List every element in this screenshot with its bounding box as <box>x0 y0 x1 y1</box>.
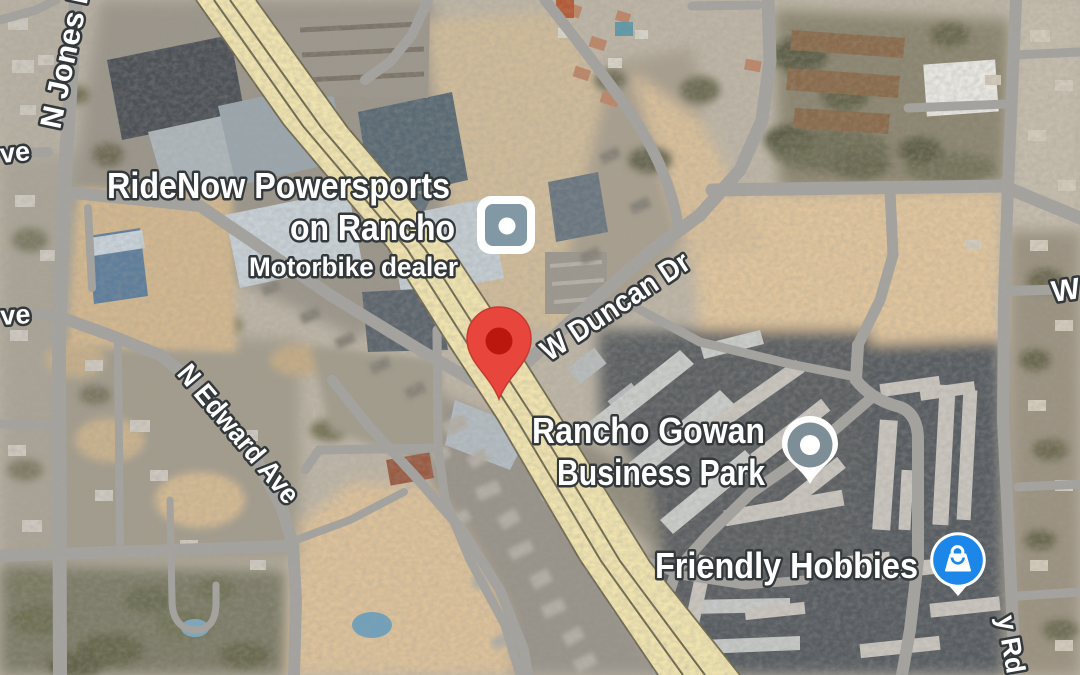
svg-text:Friendly Hobbies: Friendly Hobbies <box>655 545 918 586</box>
svg-text:on Rancho: on Rancho <box>290 207 455 248</box>
svg-text:W: W <box>1049 272 1080 309</box>
svg-text:Motorbike dealer: Motorbike dealer <box>249 252 458 282</box>
svg-text:RideNow Powersports: RideNow Powersports <box>107 165 450 206</box>
svg-text:ve: ve <box>0 299 31 331</box>
svg-text:Business Park: Business Park <box>557 452 766 493</box>
svg-text:Rancho Gowan: Rancho Gowan <box>532 410 765 451</box>
svg-text:ve: ve <box>0 136 32 169</box>
